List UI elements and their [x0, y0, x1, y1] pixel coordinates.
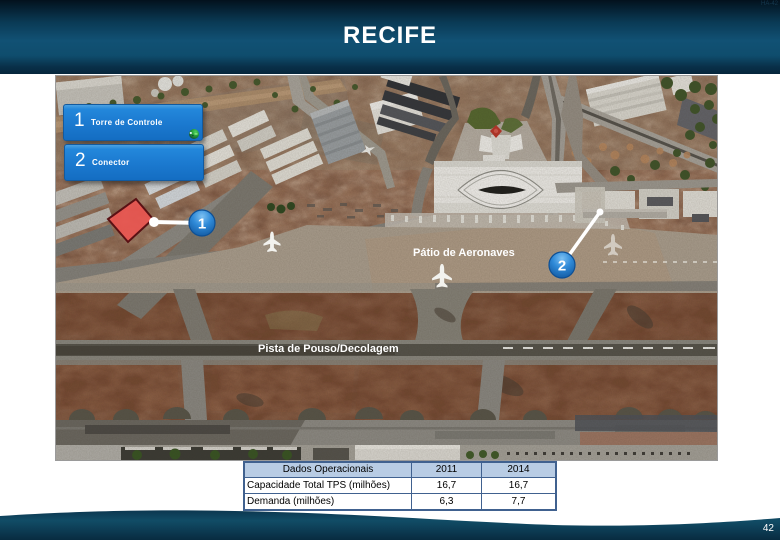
svg-text:2: 2	[558, 258, 566, 275]
svg-text:Pista de Pouso/Decolagem: Pista de Pouso/Decolagem	[258, 343, 399, 355]
svg-text:1: 1	[198, 216, 206, 233]
svg-text:Pátio de Aeronaves: Pátio de Aeronaves	[413, 247, 515, 259]
